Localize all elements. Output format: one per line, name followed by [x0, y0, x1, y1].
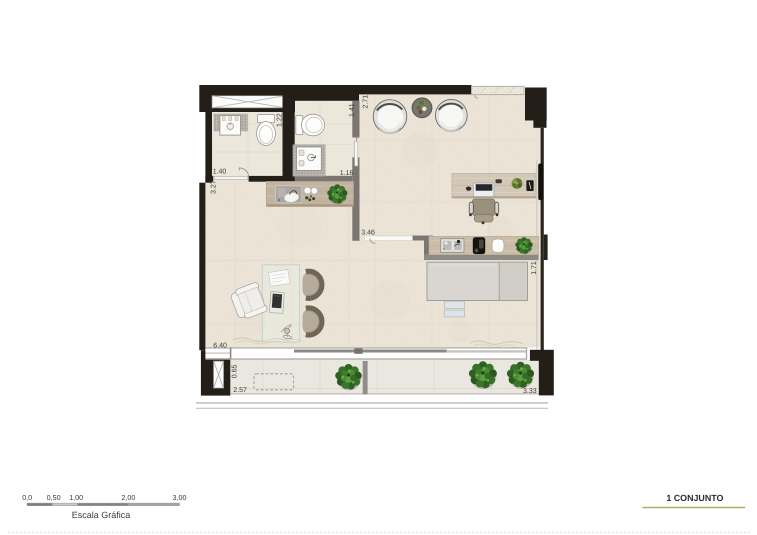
- svg-text:3.27: 3.27: [210, 180, 217, 194]
- svg-text:0,50: 0,50: [47, 493, 61, 502]
- svg-text:0,0: 0,0: [22, 493, 32, 502]
- svg-text:0.65: 0.65: [232, 364, 239, 378]
- svg-text:1.41: 1.41: [349, 103, 356, 117]
- svg-text:1,00: 1,00: [69, 493, 83, 502]
- svg-text:3,00: 3,00: [173, 493, 187, 502]
- svg-text:1.71: 1.71: [531, 261, 538, 275]
- svg-text:1.40: 1.40: [213, 169, 227, 176]
- svg-text:2.71: 2.71: [363, 95, 370, 109]
- svg-text:1 CONJUNTO: 1 CONJUNTO: [666, 493, 723, 503]
- svg-text:2.57: 2.57: [233, 387, 247, 394]
- svg-text:3.46: 3.46: [361, 229, 375, 236]
- svg-text:3.33: 3.33: [523, 388, 537, 395]
- svg-text:1.22: 1.22: [276, 113, 283, 127]
- svg-text:6.40: 6.40: [213, 342, 227, 349]
- svg-text:Escala Gráfica: Escala Gráfica: [72, 510, 131, 520]
- svg-text:1.16: 1.16: [340, 170, 354, 177]
- svg-text:2,00: 2,00: [121, 493, 135, 502]
